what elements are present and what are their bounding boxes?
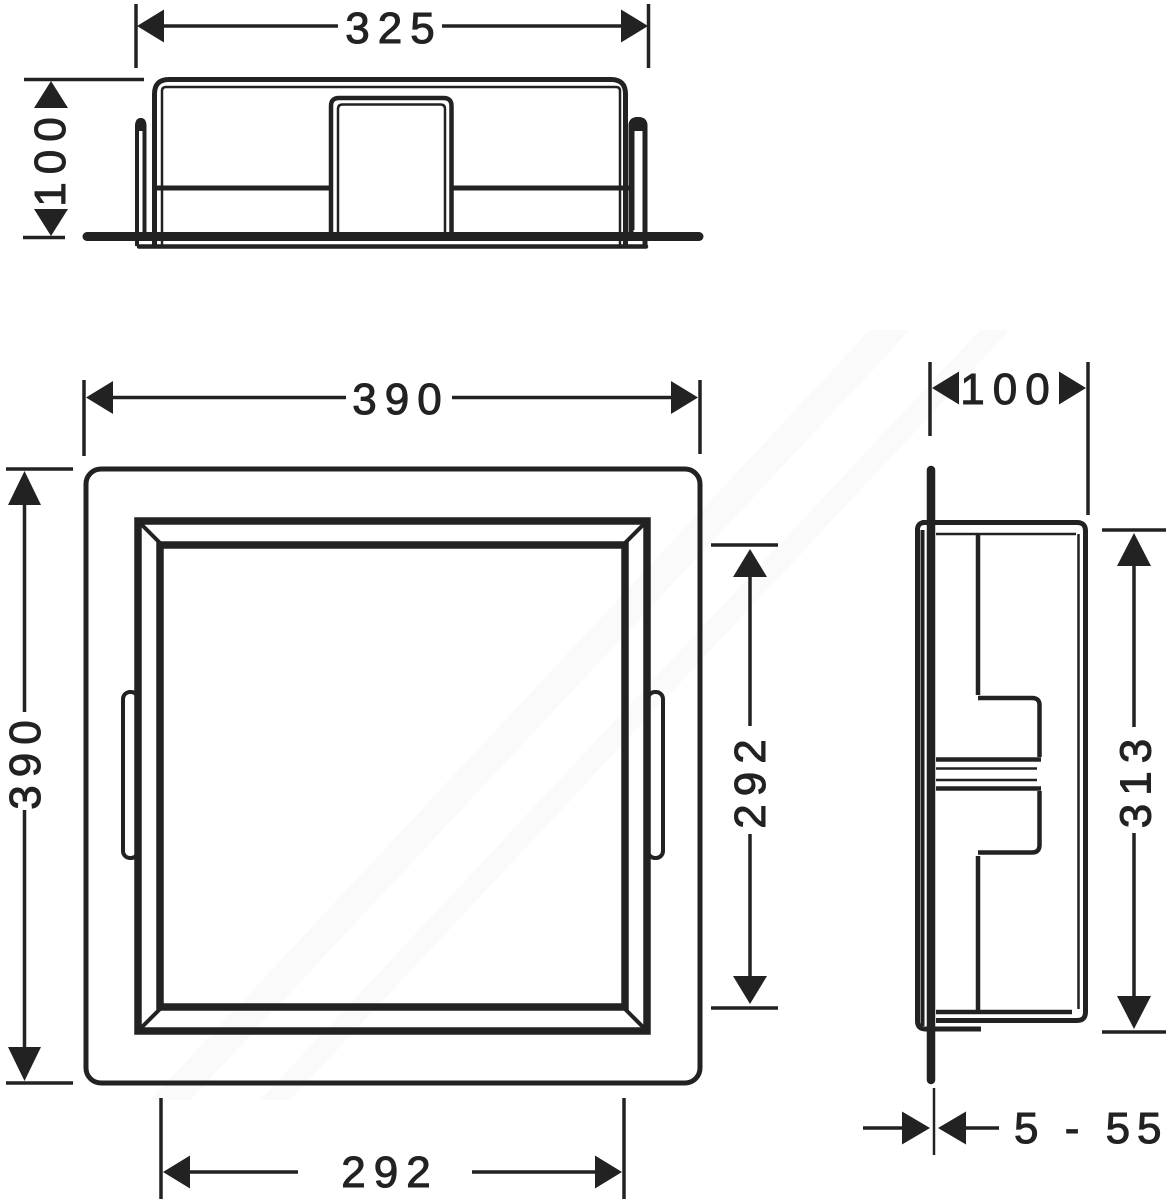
svg-text:325: 325	[345, 4, 442, 53]
svg-text:5 - 55: 5 - 55	[1014, 1104, 1166, 1153]
svg-text:390: 390	[352, 375, 449, 424]
svg-text:390: 390	[1, 712, 50, 809]
svg-text:292: 292	[726, 731, 775, 828]
svg-text:313: 313	[1112, 731, 1161, 828]
svg-text:292: 292	[341, 1148, 438, 1197]
svg-text:100: 100	[960, 365, 1057, 414]
svg-text:100: 100	[26, 109, 75, 206]
